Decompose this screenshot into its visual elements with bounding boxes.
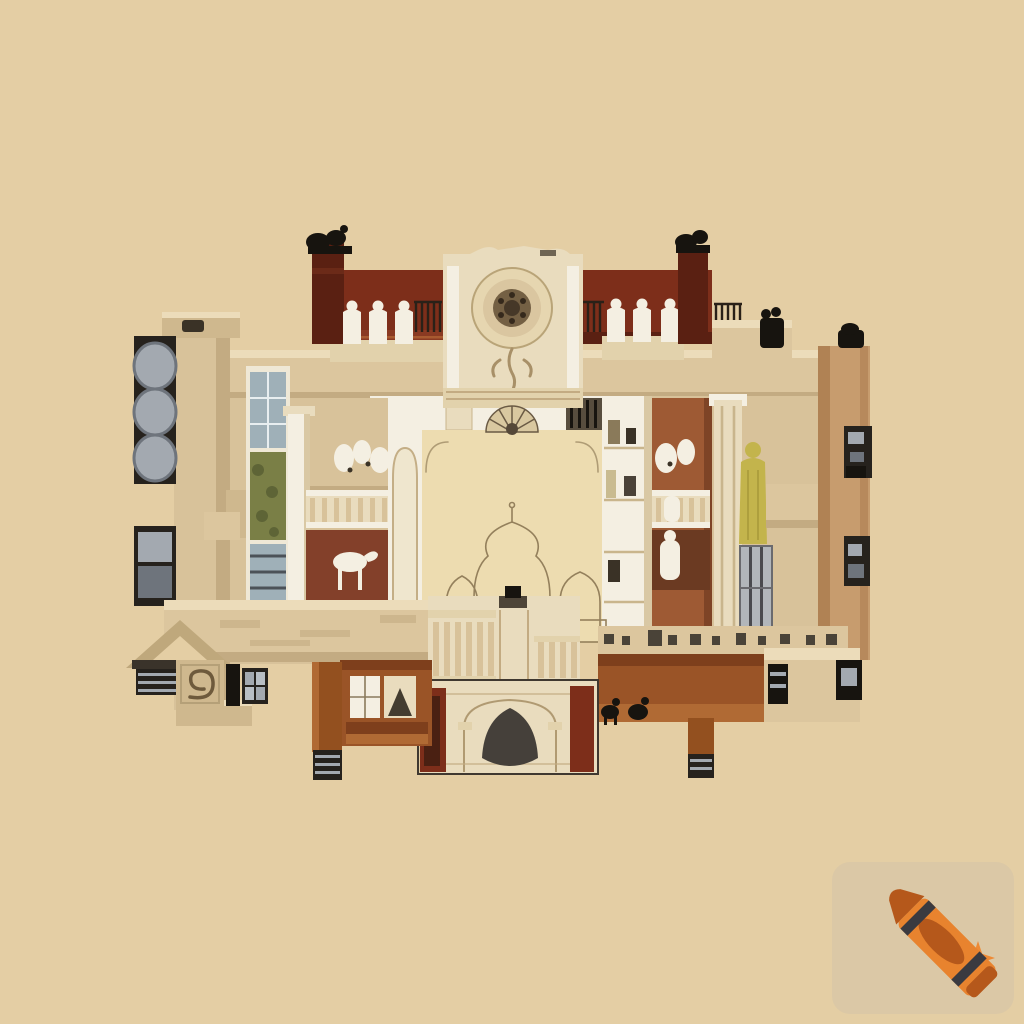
rooftop-object: [838, 323, 864, 348]
gallery-balustrade: [306, 490, 392, 528]
watermark-tile: [832, 862, 1014, 1014]
shelf-item: [608, 560, 620, 582]
wall-sconce: [844, 536, 870, 586]
crayon-logo: [832, 862, 1014, 1014]
crate-alcove-lower: [134, 526, 176, 606]
dark-cabinet: [652, 530, 710, 590]
dark-slot: [226, 664, 240, 706]
left-leg: [312, 662, 342, 780]
ledge-bracket: [766, 484, 820, 528]
generated-image: [0, 0, 1024, 1024]
wall-sconce: [844, 426, 872, 478]
seated-figures-left: [343, 301, 413, 345]
paned-window: [242, 668, 268, 704]
shelf-item: [606, 470, 616, 498]
shelf-item: [626, 428, 636, 444]
stepped-pier-right: [764, 648, 862, 722]
shelf-item: [608, 420, 620, 444]
crayon-icon: [878, 878, 1001, 1001]
dark-finial: [760, 307, 784, 348]
brown-beam-left: [340, 660, 432, 746]
grey-barrels: [134, 343, 176, 481]
barrel-alcove-upper: [134, 336, 176, 484]
window-slot: [246, 366, 290, 624]
black-block: [768, 664, 788, 704]
shelf-pillar: [602, 396, 652, 642]
right-leg: [688, 718, 714, 778]
balustrade-right: [652, 490, 710, 528]
room-window: [384, 676, 416, 718]
seated-figures-right: [607, 299, 679, 343]
red-side-pillar: [570, 686, 594, 772]
right-chimney: [678, 246, 708, 344]
room-window: [350, 676, 380, 718]
rosette-facade: [443, 246, 583, 408]
shelf-item: [624, 476, 636, 496]
silver-window: [740, 546, 772, 628]
scroll-panel: [176, 660, 224, 708]
rooftop-object: [182, 320, 204, 332]
birds-on-right-chimney: [675, 230, 710, 253]
fireplace: [418, 586, 598, 774]
black-block: [836, 660, 862, 700]
far-right-parapet: [712, 307, 792, 386]
birds-on-left-chimney: [306, 225, 352, 254]
rosette-medallion: [472, 268, 552, 348]
center-pier: [496, 586, 532, 682]
foliage-through-arch: [250, 452, 286, 540]
